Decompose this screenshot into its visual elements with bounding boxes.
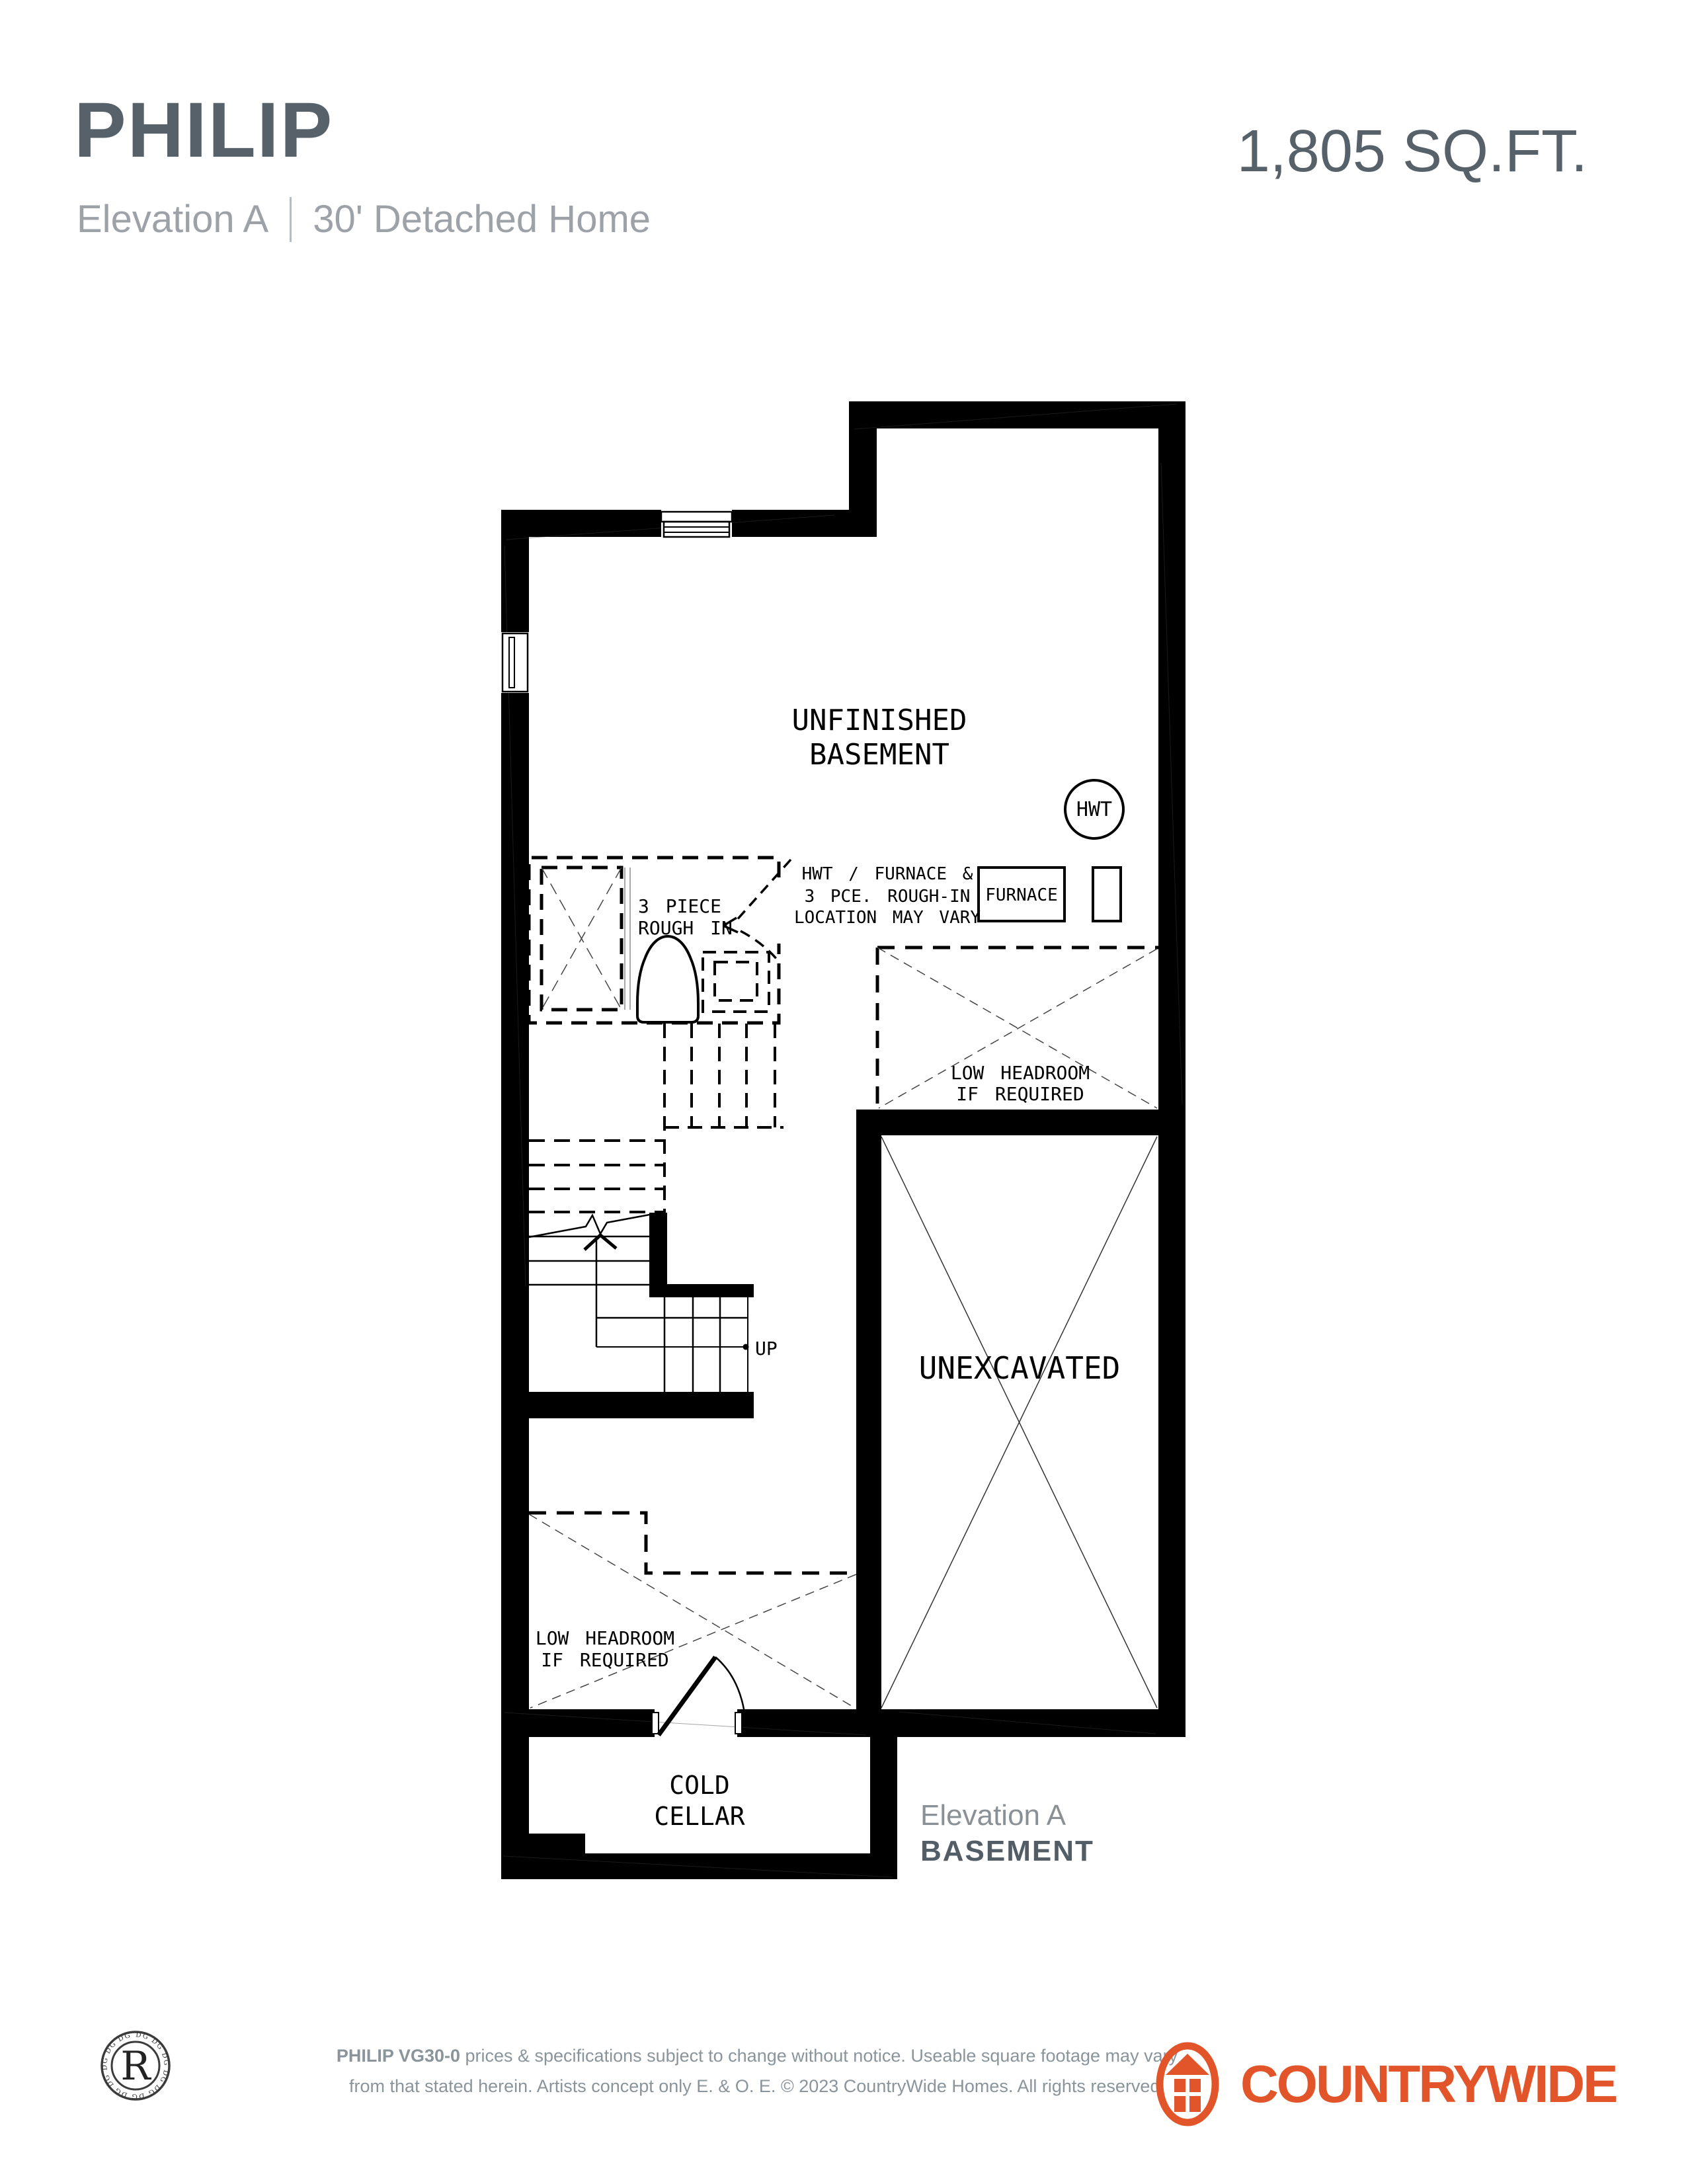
wall-unexcavated-top [856, 1110, 1158, 1135]
up-leader-dot [743, 1344, 749, 1350]
low-headroom-left [529, 1513, 856, 1708]
wall-unexcavated-left [856, 1110, 881, 1737]
hwt-note-line-2: 3 PCE. ROUGH-IN [805, 887, 971, 907]
cold-cellar-label-1: COLD [669, 1771, 730, 1800]
wall-cellar-band-left [501, 1709, 655, 1737]
wall-bottom-ledge [501, 1834, 585, 1853]
low-headroom-right-label-2: IF REQUIRED [956, 1083, 1084, 1105]
unexcavated-label: UNEXCAVATED [919, 1350, 1121, 1386]
plan-caption: Elevation A BASEMENT [920, 1801, 1094, 1866]
brand-word-wide: WIDE [1486, 2054, 1617, 2113]
note-leader-line [735, 860, 791, 922]
disclaimer-line-2: from that stated herein. Artists concept… [311, 2071, 1203, 2101]
furnace-label: FURNACE [985, 885, 1058, 905]
wall-top-left-a [501, 510, 661, 537]
countrywide-house-icon [1152, 2037, 1223, 2132]
wall-left [501, 510, 529, 1879]
wall-right [1158, 401, 1186, 1737]
wall-stair-landing [667, 1284, 754, 1297]
duct-box [1093, 868, 1121, 921]
window-top [661, 510, 732, 537]
rough-in-label-1: 3 PIECE [638, 895, 721, 917]
stair-direction-arrow [584, 1235, 616, 1250]
shower-rough-in-inner [715, 962, 757, 1000]
brochure-page: PHILIP 1,805 SQ.FT. Elevation A 30' Deta… [0, 0, 1688, 2184]
caption-elevation: Elevation A [920, 1801, 1094, 1830]
wall-bottom [501, 1853, 897, 1879]
stairs [529, 1024, 784, 1392]
plan-labels: UNFINISHED BASEMENT HWT / FURNACE & 3 PC… [536, 704, 1120, 1831]
badge-letter: R [120, 2043, 151, 2089]
basement-floor-plan: HWT FURNACE UNFINISHED BASEMENT HWT / FU… [0, 0, 1688, 2184]
legal-disclaimer: PHILIP VG30-0 prices & specifications su… [311, 2041, 1203, 2101]
stair-break-line [529, 1214, 653, 1237]
disclaimer-line-1: PHILIP VG30-0 prices & specifications su… [311, 2041, 1203, 2071]
hwt-note-line-3: LOCATION MAY VARY [794, 908, 981, 928]
up-label: UP [755, 1338, 778, 1359]
bath-rough-in [529, 858, 791, 1023]
unfinished-basement-label-2: BASEMENT [809, 738, 949, 772]
furnace: FURNACE [979, 868, 1121, 921]
countrywide-wordmark: COUNTRYWIDE [1240, 2054, 1616, 2115]
low-headroom-left-label-2: IF REQUIRED [541, 1649, 668, 1671]
registered-builder-badge: DG DG DG DG DG DG DG DG DG DG DG DG DG D… [96, 2026, 175, 2105]
unfinished-basement-label-1: UNFINISHED [792, 704, 967, 737]
toilet-rough-in [637, 936, 698, 1022]
hwt-label: HWT [1076, 798, 1112, 821]
rough-in-door-swing [741, 931, 778, 960]
model-code: PHILIP VG30-0 [337, 2046, 460, 2066]
brand-word-country: COUNTRY [1240, 2054, 1486, 2113]
low-headroom-right-label-1: LOW HEADROOM [951, 1062, 1090, 1084]
unexcavated-x [881, 1137, 1157, 1708]
hwt-note-line-1: HWT / FURNACE & [802, 864, 973, 884]
wall-top-right [849, 401, 1186, 428]
low-headroom-left-label-1: LOW HEADROOM [536, 1627, 674, 1649]
countrywide-logo: COUNTRYWIDE [1152, 2037, 1616, 2132]
hwt-tank: HWT [1065, 780, 1123, 838]
wall-cellar-band-right [737, 1709, 1186, 1737]
disclaimer-text-1: prices & specifications subject to chang… [460, 2046, 1178, 2066]
cold-cellar-label-2: CELLAR [654, 1802, 744, 1831]
rough-in-label-2: ROUGH IN [638, 917, 733, 939]
wall-stair-bottom [501, 1392, 754, 1418]
caption-floor: BASEMENT [920, 1837, 1094, 1866]
rough-in-outline [529, 858, 779, 1023]
wall-stair-vertical [649, 1213, 667, 1297]
window-left [501, 632, 529, 693]
